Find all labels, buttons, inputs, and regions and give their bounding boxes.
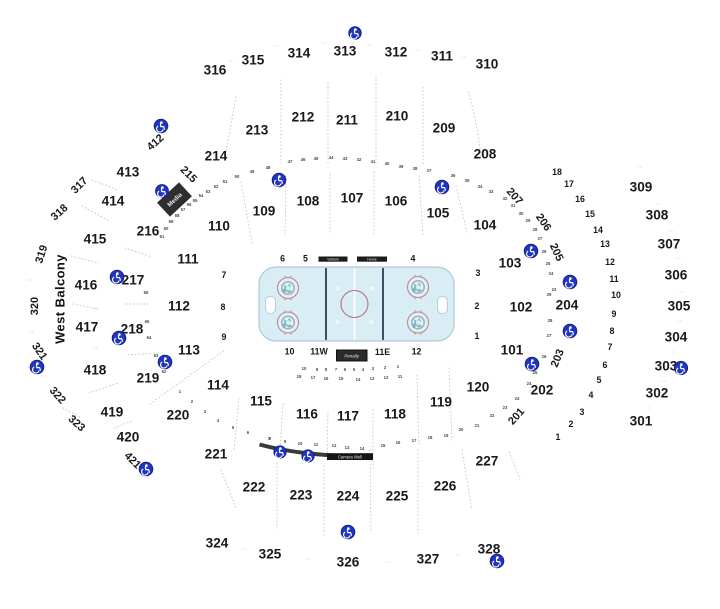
svg-text:202: 202 xyxy=(531,383,554,398)
svg-text:24: 24 xyxy=(549,271,554,276)
svg-text:9: 9 xyxy=(222,332,227,342)
svg-text:15: 15 xyxy=(381,443,386,448)
svg-text:324: 324 xyxy=(206,536,229,551)
svg-text:1: 1 xyxy=(475,331,480,341)
svg-text:3: 3 xyxy=(476,268,481,278)
svg-text:34: 34 xyxy=(478,184,483,189)
svg-text:305: 305 xyxy=(668,299,691,314)
svg-text:6: 6 xyxy=(280,254,285,264)
svg-text:327: 327 xyxy=(417,552,440,567)
svg-text:30: 30 xyxy=(519,211,524,216)
svg-text:60: 60 xyxy=(164,226,169,231)
svg-text:2: 2 xyxy=(569,419,574,429)
svg-text:19: 19 xyxy=(444,433,449,438)
svg-text:11: 11 xyxy=(609,274,618,284)
svg-text:119: 119 xyxy=(430,395,452,410)
svg-text:41: 41 xyxy=(371,159,376,164)
svg-text:13: 13 xyxy=(600,239,610,249)
svg-text:116: 116 xyxy=(296,407,318,422)
svg-text:1: 1 xyxy=(179,389,182,394)
svg-text:13: 13 xyxy=(370,376,375,381)
svg-text:118: 118 xyxy=(384,407,406,422)
svg-text:12: 12 xyxy=(332,443,337,448)
svg-text:223: 223 xyxy=(290,488,313,503)
svg-text:3: 3 xyxy=(204,409,207,414)
svg-text:29: 29 xyxy=(526,218,531,223)
svg-text:28: 28 xyxy=(548,318,553,323)
svg-text:62: 62 xyxy=(162,369,167,374)
svg-text:47: 47 xyxy=(288,159,293,164)
svg-text:8: 8 xyxy=(325,367,328,372)
svg-text:319: 319 xyxy=(33,244,50,265)
svg-text:307: 307 xyxy=(658,237,681,252)
svg-text:11: 11 xyxy=(314,442,319,447)
svg-text:318: 318 xyxy=(49,202,71,223)
svg-text:29: 29 xyxy=(547,292,552,297)
svg-text:225: 225 xyxy=(386,489,409,504)
svg-text:11E: 11E xyxy=(375,347,390,357)
svg-text:10: 10 xyxy=(285,347,295,357)
svg-text:7: 7 xyxy=(222,270,227,280)
svg-text:45: 45 xyxy=(314,156,319,161)
svg-text:58: 58 xyxy=(175,213,180,218)
svg-text:Home: Home xyxy=(367,258,377,262)
svg-text:46: 46 xyxy=(301,157,306,162)
svg-text:Camera Well: Camera Well xyxy=(338,454,362,459)
svg-text:25: 25 xyxy=(546,261,551,266)
svg-text:18: 18 xyxy=(297,374,302,379)
svg-text:201: 201 xyxy=(506,406,527,428)
svg-text:301: 301 xyxy=(630,414,653,429)
svg-text:2: 2 xyxy=(475,301,480,311)
svg-text:13: 13 xyxy=(345,445,350,450)
svg-text:27: 27 xyxy=(538,236,543,241)
svg-text:7: 7 xyxy=(335,367,338,372)
svg-text:101: 101 xyxy=(501,343,524,358)
svg-text:12: 12 xyxy=(412,347,422,357)
svg-text:22: 22 xyxy=(490,413,495,418)
svg-text:219: 219 xyxy=(137,371,160,386)
svg-text:302: 302 xyxy=(646,386,669,401)
svg-text:6: 6 xyxy=(344,367,347,372)
svg-text:23: 23 xyxy=(552,287,557,292)
svg-text:43: 43 xyxy=(343,156,348,161)
svg-text:317: 317 xyxy=(69,175,90,196)
svg-text:4: 4 xyxy=(411,254,416,264)
svg-text:416: 416 xyxy=(75,278,98,293)
svg-text:414: 414 xyxy=(102,194,125,209)
svg-text:316: 316 xyxy=(204,63,227,78)
svg-text:20: 20 xyxy=(459,427,464,432)
svg-text:320: 320 xyxy=(29,297,41,315)
svg-text:420: 420 xyxy=(117,430,140,445)
svg-text:222: 222 xyxy=(243,480,266,495)
svg-text:West Balcony: West Balcony xyxy=(52,254,67,344)
svg-text:9: 9 xyxy=(284,439,287,444)
svg-text:224: 224 xyxy=(337,489,360,504)
svg-text:5: 5 xyxy=(353,367,356,372)
svg-text:325: 325 xyxy=(259,547,282,562)
svg-text:5: 5 xyxy=(597,375,602,385)
svg-text:221: 221 xyxy=(205,447,228,462)
svg-text:1: 1 xyxy=(397,364,400,369)
svg-text:4: 4 xyxy=(589,390,594,400)
svg-text:48: 48 xyxy=(266,165,271,170)
svg-text:7: 7 xyxy=(608,342,613,352)
svg-text:8: 8 xyxy=(610,326,615,336)
svg-text:115: 115 xyxy=(250,394,272,409)
svg-text:105: 105 xyxy=(427,206,450,221)
svg-text:109: 109 xyxy=(253,204,276,219)
svg-text:44: 44 xyxy=(329,155,334,160)
svg-text:50: 50 xyxy=(235,174,240,179)
svg-text:4: 4 xyxy=(217,418,220,423)
svg-text:36: 36 xyxy=(451,173,456,178)
svg-text:9: 9 xyxy=(612,309,617,319)
svg-text:419: 419 xyxy=(101,405,124,420)
svg-text:207: 207 xyxy=(504,186,525,208)
svg-text:311: 311 xyxy=(431,49,453,64)
svg-text:208: 208 xyxy=(474,147,497,162)
svg-text:111: 111 xyxy=(177,252,199,267)
svg-text:33: 33 xyxy=(489,189,494,194)
svg-text:27: 27 xyxy=(547,333,552,338)
svg-text:53: 53 xyxy=(206,189,211,194)
svg-text:6: 6 xyxy=(603,360,608,370)
svg-text:117: 117 xyxy=(337,409,359,424)
svg-text:314: 314 xyxy=(288,46,311,61)
svg-text:211: 211 xyxy=(336,113,358,128)
svg-text:306: 306 xyxy=(665,268,688,283)
svg-text:26: 26 xyxy=(542,354,547,359)
svg-text:5: 5 xyxy=(303,254,308,264)
svg-text:209: 209 xyxy=(433,121,456,136)
svg-text:418: 418 xyxy=(84,363,107,378)
svg-text:11: 11 xyxy=(398,374,403,379)
svg-text:102: 102 xyxy=(510,300,533,315)
svg-text:110: 110 xyxy=(208,219,230,234)
svg-text:65: 65 xyxy=(145,319,150,324)
svg-text:210: 210 xyxy=(386,109,409,124)
svg-text:114: 114 xyxy=(207,378,229,393)
svg-text:42: 42 xyxy=(357,157,362,162)
svg-text:15: 15 xyxy=(585,209,595,219)
svg-text:308: 308 xyxy=(646,208,669,223)
svg-text:226: 226 xyxy=(434,479,457,494)
svg-text:Visitors: Visitors xyxy=(327,258,339,262)
svg-text:26: 26 xyxy=(542,249,547,254)
svg-text:5: 5 xyxy=(232,425,235,430)
svg-text:8: 8 xyxy=(269,436,272,441)
svg-text:310: 310 xyxy=(476,57,499,72)
svg-text:9: 9 xyxy=(316,367,319,372)
svg-text:16: 16 xyxy=(396,440,401,445)
svg-text:304: 304 xyxy=(665,330,688,345)
svg-text:51: 51 xyxy=(223,179,228,184)
svg-text:213: 213 xyxy=(246,123,269,138)
svg-text:313: 313 xyxy=(334,44,357,59)
svg-text:12: 12 xyxy=(384,375,389,380)
svg-text:63: 63 xyxy=(154,353,159,358)
svg-text:3: 3 xyxy=(372,366,375,371)
svg-text:104: 104 xyxy=(474,218,497,233)
svg-text:23: 23 xyxy=(503,405,508,410)
svg-text:415: 415 xyxy=(84,232,107,247)
svg-text:17: 17 xyxy=(311,375,316,380)
svg-text:212: 212 xyxy=(292,110,315,125)
svg-text:309: 309 xyxy=(630,180,653,195)
svg-text:14: 14 xyxy=(360,446,365,451)
svg-text:417: 417 xyxy=(76,320,99,335)
svg-text:2: 2 xyxy=(191,399,194,404)
svg-text:326: 326 xyxy=(337,555,360,570)
svg-text:61: 61 xyxy=(160,234,165,239)
svg-text:10: 10 xyxy=(302,366,307,371)
svg-text:17: 17 xyxy=(412,438,417,443)
svg-text:412: 412 xyxy=(145,132,167,153)
svg-text:56: 56 xyxy=(187,202,192,207)
svg-text:220: 220 xyxy=(167,408,190,423)
svg-text:103: 103 xyxy=(499,256,522,271)
svg-text:214: 214 xyxy=(205,149,228,164)
svg-text:64: 64 xyxy=(147,335,152,340)
svg-text:24: 24 xyxy=(515,396,520,401)
svg-text:315: 315 xyxy=(242,53,265,68)
svg-text:10: 10 xyxy=(611,290,621,300)
svg-text:1: 1 xyxy=(556,432,561,442)
svg-text:112: 112 xyxy=(168,299,190,314)
svg-text:57: 57 xyxy=(181,207,186,212)
svg-text:16: 16 xyxy=(324,376,329,381)
svg-text:113: 113 xyxy=(178,343,200,358)
svg-text:10: 10 xyxy=(298,441,303,446)
svg-text:37: 37 xyxy=(427,168,432,173)
svg-text:413: 413 xyxy=(117,165,140,180)
svg-text:15: 15 xyxy=(339,376,344,381)
svg-text:4: 4 xyxy=(362,367,365,372)
svg-text:52: 52 xyxy=(214,184,219,189)
svg-text:11W: 11W xyxy=(310,347,328,357)
svg-text:59: 59 xyxy=(169,219,174,224)
svg-text:322: 322 xyxy=(47,385,68,407)
svg-text:14: 14 xyxy=(356,377,361,382)
svg-text:16: 16 xyxy=(575,194,585,204)
svg-text:6: 6 xyxy=(247,430,250,435)
svg-text:55: 55 xyxy=(193,198,198,203)
svg-text:14: 14 xyxy=(593,225,603,235)
svg-text:107: 107 xyxy=(341,191,364,206)
svg-text:35: 35 xyxy=(465,178,470,183)
svg-text:205: 205 xyxy=(547,242,566,264)
svg-text:3: 3 xyxy=(580,407,585,417)
svg-text:108: 108 xyxy=(297,194,320,209)
svg-text:321: 321 xyxy=(29,341,49,363)
svg-text:216: 216 xyxy=(137,224,160,239)
svg-text:204: 204 xyxy=(556,298,579,313)
svg-text:66: 66 xyxy=(144,290,149,295)
svg-text:8: 8 xyxy=(221,302,226,312)
svg-text:49: 49 xyxy=(250,169,255,174)
svg-text:21: 21 xyxy=(475,423,480,428)
svg-text:203: 203 xyxy=(549,348,567,370)
svg-text:28: 28 xyxy=(533,227,538,232)
svg-text:217: 217 xyxy=(122,273,145,288)
svg-text:120: 120 xyxy=(467,380,490,395)
svg-text:323: 323 xyxy=(66,413,88,434)
svg-text:38: 38 xyxy=(413,166,418,171)
svg-text:54: 54 xyxy=(199,193,204,198)
svg-text:39: 39 xyxy=(399,164,404,169)
svg-text:215: 215 xyxy=(178,164,199,185)
svg-text:Penalty: Penalty xyxy=(344,354,359,359)
svg-text:17: 17 xyxy=(564,179,574,189)
svg-text:40: 40 xyxy=(385,161,390,166)
svg-text:227: 227 xyxy=(476,454,499,469)
svg-text:2: 2 xyxy=(384,365,387,370)
svg-text:12: 12 xyxy=(605,257,615,267)
svg-text:312: 312 xyxy=(385,45,408,60)
svg-text:18: 18 xyxy=(552,167,562,177)
svg-text:18: 18 xyxy=(428,435,433,440)
svg-text:106: 106 xyxy=(385,194,408,209)
